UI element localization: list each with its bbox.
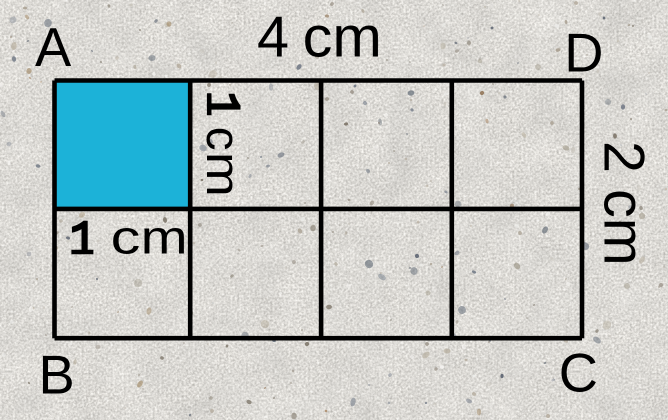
svg-text:D: D [564,23,603,84]
svg-text:B: B [39,344,75,405]
svg-text:m: m [141,212,188,265]
svg-text:c: c [111,212,141,265]
svg-text:m: m [196,152,249,197]
svg-text:c: c [196,127,249,151]
svg-text:C: C [559,343,598,404]
svg-text:4: 4 [257,6,289,70]
svg-text:cm: cm [303,6,382,70]
svg-text:A: A [35,17,72,78]
svg-text:2 cm: 2 cm [592,141,656,266]
